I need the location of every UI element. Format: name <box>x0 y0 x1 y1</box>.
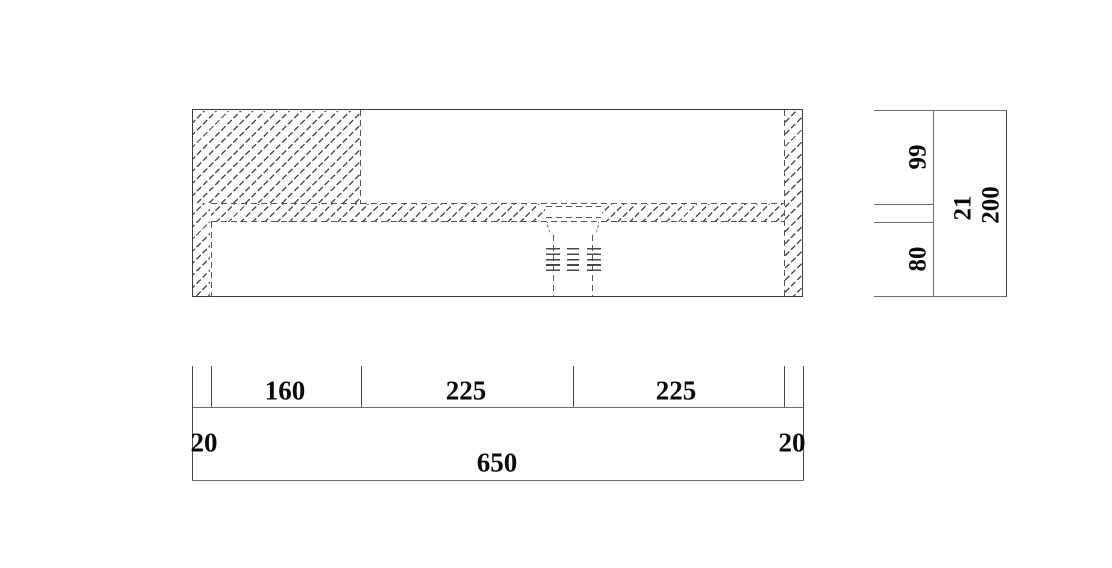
dim-tick-drain-center <box>573 366 574 407</box>
bottom-dim-line-upper <box>192 407 804 408</box>
right-wall-inner-hidden-edge <box>784 110 785 297</box>
dim-label-99: 99 <box>906 145 931 170</box>
side-ext-line-top <box>874 110 1007 111</box>
dim-tick-block-edge <box>361 366 362 407</box>
dim-label-21: 21 <box>951 196 976 221</box>
drain-thread-middle-stack <box>567 248 579 275</box>
drain-thread-right-stack <box>587 248 601 275</box>
dim-label-225-right: 225 <box>656 378 697 405</box>
dim-tick-left-wall <box>211 366 212 407</box>
dim-label-200: 200 <box>979 186 1004 224</box>
side-ext-line-bottom <box>874 296 1007 297</box>
dim-label-650: 650 <box>477 450 518 477</box>
slab-top-hidden-edge <box>211 203 784 204</box>
dim-tick-left-outer <box>192 366 193 480</box>
dim-label-80: 80 <box>906 247 931 272</box>
dim-label-20-right: 20 <box>779 430 806 457</box>
side-dim-line-outer <box>1006 110 1007 297</box>
dim-label-225-left: 225 <box>446 378 487 405</box>
bottom-dim-line-overall <box>192 480 804 481</box>
drain-hole-upper-hidden-line <box>546 206 601 207</box>
drawing-canvas: 99 80 21 200 160 225 225 20 20 650 <box>0 0 1112 568</box>
dim-tick-right-wall <box>784 366 785 407</box>
side-ext-line-slab-top <box>874 204 934 205</box>
dim-label-20-left: 20 <box>191 430 218 457</box>
dim-tick-right-outer <box>803 366 804 480</box>
block-right-hidden-edge <box>360 110 361 204</box>
side-ext-line-slab-bottom <box>874 222 934 223</box>
side-dim-line-inner <box>933 110 934 297</box>
slab-bottom-hidden-edge <box>211 221 784 222</box>
drain-hole-lower-hidden-line <box>546 217 601 218</box>
dim-label-160: 160 <box>265 378 306 405</box>
left-wall-inner-hidden-edge <box>211 222 212 297</box>
drain-thread-left-stack <box>546 248 560 275</box>
